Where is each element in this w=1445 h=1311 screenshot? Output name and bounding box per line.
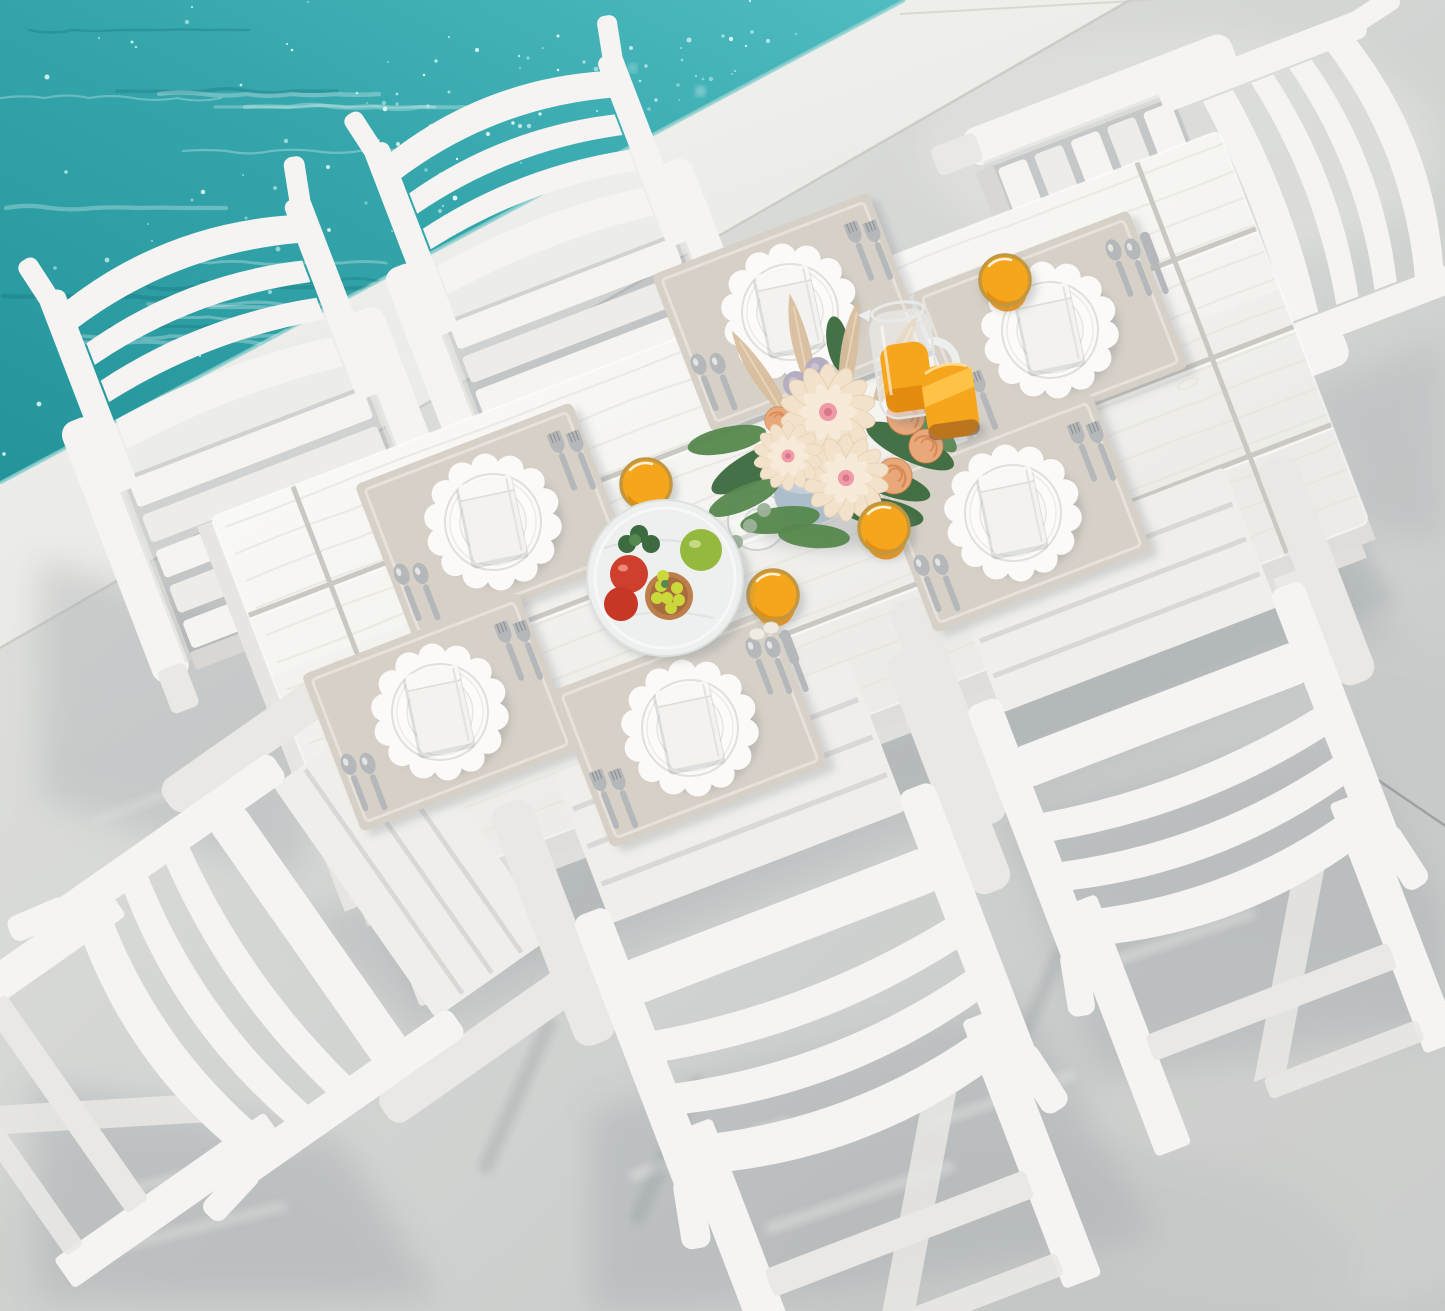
- water-sparkle: [695, 75, 697, 77]
- water-sparkle: [307, 1, 309, 3]
- water-sparkle: [518, 55, 521, 58]
- water-sparkle: [423, 74, 426, 77]
- water-sparkle: [201, 190, 205, 194]
- water-sparkle: [131, 41, 134, 44]
- water-sparkle: [709, 77, 713, 81]
- water-sparkle: [98, 37, 100, 39]
- grape: [665, 602, 677, 614]
- water-sparkle: [456, 158, 458, 160]
- water-sparkle: [383, 107, 388, 112]
- water-sparkle: [434, 59, 437, 62]
- water-sparkle: [396, 93, 399, 96]
- water-sparkle: [291, 49, 294, 52]
- apple-highlight: [689, 540, 701, 548]
- water-sparkle: [680, 47, 682, 49]
- water-sparkle: [596, 110, 598, 112]
- scene-canvas: [0, 0, 1445, 1311]
- green-apple: [680, 529, 722, 571]
- water-sparkle: [795, 33, 797, 35]
- red-apple: [610, 555, 648, 593]
- water-sparkle: [526, 56, 529, 59]
- water-sparkle: [273, 186, 277, 190]
- water-sparkle: [766, 39, 770, 43]
- water-glint: [697, 88, 704, 95]
- water-sparkle: [2, 452, 5, 455]
- water-sparkle: [687, 38, 692, 43]
- water-glint: [630, 65, 636, 71]
- herb-garnish: [629, 534, 641, 546]
- dahlia-center-core: [785, 453, 791, 459]
- water-sparkle: [745, 45, 747, 47]
- water-sparkle: [366, 102, 368, 104]
- water-sparkle: [582, 60, 585, 63]
- water-sparkle: [326, 165, 330, 169]
- water-sparkle: [284, 139, 288, 143]
- grape: [657, 570, 669, 582]
- water-sparkle: [240, 84, 243, 87]
- water-sparkle: [286, 43, 288, 45]
- water-sparkle: [542, 47, 544, 49]
- water-sparkle: [185, 20, 189, 24]
- water-ripple: [215, 105, 435, 107]
- herb-garnish: [642, 535, 660, 553]
- water-sparkle: [639, 80, 642, 83]
- water-sparkle: [276, 247, 281, 252]
- water-sparkle: [426, 104, 430, 108]
- water-sparkle: [654, 98, 658, 102]
- eucalyptus-leaf: [743, 519, 757, 533]
- water-sparkle: [731, 73, 733, 75]
- water-sparkle: [64, 170, 67, 173]
- water-sparkle: [734, 70, 736, 72]
- water-sparkle: [135, 46, 138, 49]
- water-sparkle: [518, 124, 522, 128]
- water-sparkle: [364, 201, 367, 204]
- water-sparkle: [475, 48, 479, 52]
- water-sparkle: [438, 209, 442, 213]
- water-sparkle: [750, 30, 754, 34]
- water-sparkle: [396, 142, 400, 146]
- water-sparkle: [53, 266, 57, 270]
- red-tomato: [604, 587, 638, 621]
- water-sparkle: [395, 102, 398, 105]
- water-sparkle: [424, 168, 428, 172]
- water-sparkle: [242, 174, 244, 176]
- water-sparkle: [391, 230, 393, 232]
- water-sparkle: [245, 217, 248, 220]
- water-sparkle: [37, 402, 42, 407]
- water-sparkle: [520, 162, 522, 164]
- water-sparkle: [676, 83, 680, 87]
- dahlia-center-core: [842, 474, 849, 481]
- water-sparkle: [729, 37, 733, 41]
- water-sparkle: [527, 124, 531, 128]
- water-sparkle: [557, 69, 559, 71]
- water-sparkle: [387, 61, 389, 63]
- water-sparkle: [678, 99, 680, 101]
- dahlia-center-core: [824, 408, 832, 416]
- water-sparkle: [442, 205, 444, 207]
- water-sparkle: [557, 35, 560, 38]
- poolside-dining-set-photo: [0, 0, 1445, 1311]
- water-sparkle: [538, 112, 541, 115]
- water-sparkle: [681, 59, 684, 62]
- grape: [671, 582, 683, 594]
- water-sparkle: [191, 199, 194, 202]
- mint-sprig: [661, 580, 669, 588]
- water-sparkle: [453, 196, 458, 201]
- water-sparkle: [448, 36, 450, 38]
- water-sparkle: [268, 290, 272, 294]
- water-sparkle: [629, 46, 633, 50]
- water-sparkle: [327, 228, 331, 232]
- water-sparkle: [647, 107, 651, 111]
- water-sparkle: [594, 67, 599, 72]
- water-sparkle: [519, 67, 521, 69]
- water-sparkle: [644, 64, 647, 67]
- quail-egg: [749, 628, 765, 640]
- water-sparkle: [749, 0, 751, 2]
- apple-highlight: [618, 565, 628, 572]
- eucalyptus-leaf: [757, 503, 771, 517]
- water-sparkle: [105, 258, 110, 263]
- water-sparkle: [382, 101, 386, 105]
- water-sparkle: [45, 75, 50, 80]
- water-sparkle: [511, 121, 514, 124]
- water-sparkle: [151, 240, 153, 242]
- water-sparkle: [147, 223, 149, 225]
- water-sparkle: [356, 92, 359, 95]
- water-sparkle: [448, 91, 451, 94]
- water-sparkle: [721, 34, 724, 37]
- water-sparkle: [486, 132, 490, 136]
- quail-egg: [763, 622, 779, 634]
- grape: [651, 592, 663, 604]
- water-sparkle: [191, 6, 193, 8]
- water-sparkle: [702, 78, 705, 81]
